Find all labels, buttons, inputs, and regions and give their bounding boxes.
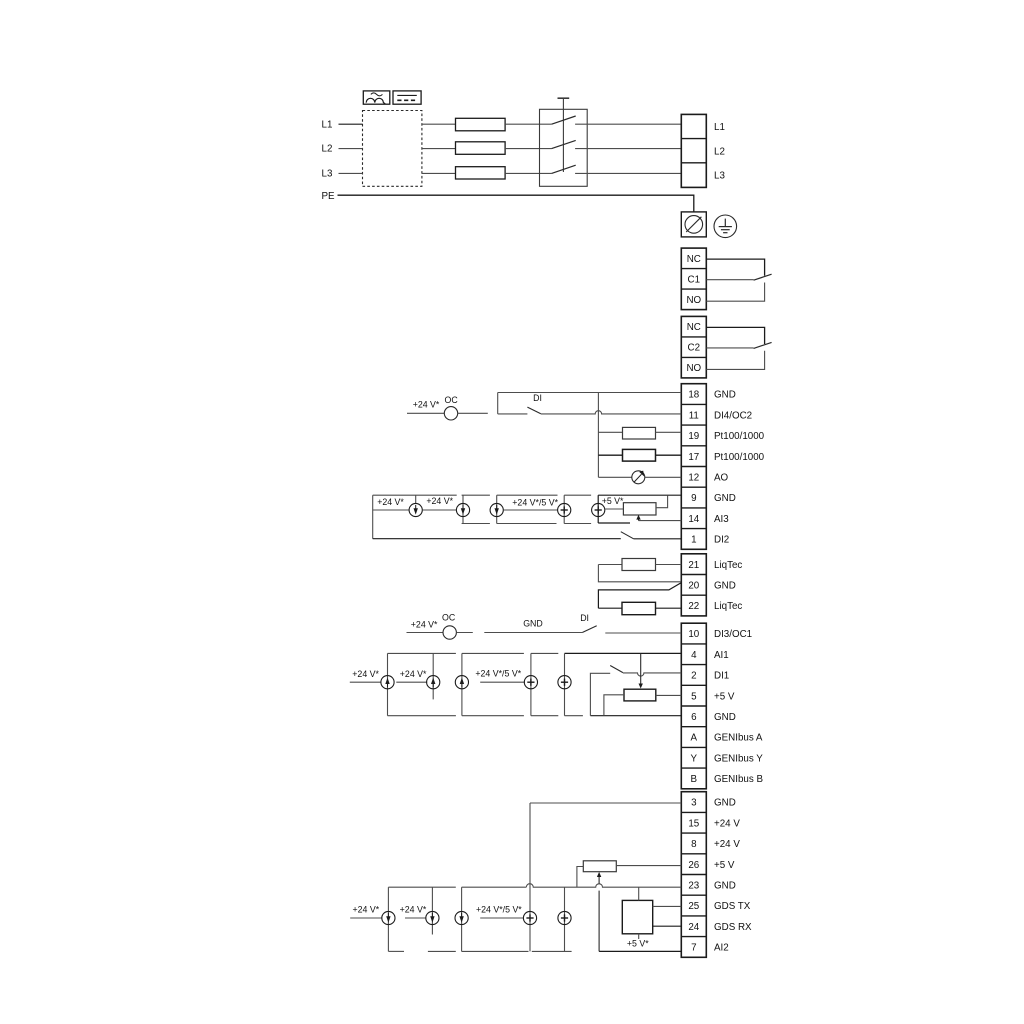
svg-text:22: 22	[688, 601, 699, 612]
svg-text:+24 V: +24 V	[714, 818, 740, 829]
svg-text:14: 14	[688, 514, 699, 525]
svg-text:AI3: AI3	[714, 514, 729, 525]
svg-text:DI1: DI1	[714, 671, 729, 682]
svg-text:OC: OC	[442, 612, 456, 622]
svg-text:OC: OC	[445, 395, 459, 405]
svg-text:GND: GND	[714, 880, 736, 891]
svg-text:LiqTec: LiqTec	[714, 601, 742, 612]
svg-text:6: 6	[691, 712, 697, 723]
svg-text:GND: GND	[523, 619, 543, 629]
svg-text:10: 10	[688, 629, 699, 640]
svg-text:DI3/OC1: DI3/OC1	[714, 629, 752, 640]
svg-text:+24 V: +24 V	[714, 839, 740, 850]
svg-text:+24 V*: +24 V*	[426, 496, 453, 506]
svg-text:23: 23	[688, 880, 699, 891]
svg-text:+24 V*: +24 V*	[413, 400, 440, 410]
svg-text:DI4/OC2: DI4/OC2	[714, 410, 752, 421]
svg-text:17: 17	[688, 452, 699, 463]
svg-text:B: B	[691, 774, 698, 785]
svg-text:C2: C2	[688, 343, 701, 354]
svg-text:C1: C1	[688, 275, 701, 286]
svg-text:DI: DI	[580, 613, 589, 623]
svg-text:L3: L3	[322, 169, 333, 180]
svg-text:+24 V*: +24 V*	[411, 619, 438, 629]
svg-text:GND: GND	[714, 580, 736, 591]
svg-text:PE: PE	[322, 191, 336, 202]
svg-text:+24 V*: +24 V*	[352, 669, 379, 679]
svg-text:DI2: DI2	[714, 535, 729, 546]
svg-text:11: 11	[689, 410, 699, 421]
svg-text:+5 V*: +5 V*	[602, 496, 624, 506]
svg-text:GND: GND	[714, 798, 736, 809]
svg-text:+24 V*: +24 V*	[400, 669, 427, 679]
svg-text:DI: DI	[533, 393, 542, 403]
svg-text:+24 V*/5 V*: +24 V*/5 V*	[476, 905, 522, 915]
svg-text:20: 20	[688, 580, 699, 591]
svg-text:9: 9	[691, 493, 696, 504]
svg-text:12: 12	[688, 472, 699, 483]
svg-text:GENIbus B: GENIbus B	[714, 774, 763, 785]
svg-text:GENIbus Y: GENIbus Y	[714, 753, 763, 764]
svg-text:Y: Y	[691, 753, 698, 764]
svg-text:+5 V: +5 V	[714, 691, 735, 702]
svg-text:GDS RX: GDS RX	[714, 922, 752, 933]
svg-text:GND: GND	[714, 493, 736, 504]
svg-text:1: 1	[691, 535, 696, 546]
svg-text:LiqTec: LiqTec	[714, 560, 742, 571]
svg-text:GENIbus A: GENIbus A	[714, 733, 763, 744]
svg-text:Pt100/1000: Pt100/1000	[714, 452, 765, 463]
svg-text:15: 15	[688, 818, 699, 829]
svg-text:AI1: AI1	[714, 650, 729, 661]
svg-text:GND: GND	[714, 712, 736, 723]
svg-text:NO: NO	[686, 363, 701, 374]
svg-text:GND: GND	[714, 390, 736, 401]
svg-text:L1: L1	[322, 119, 333, 130]
svg-text:NO: NO	[686, 295, 701, 306]
svg-text:26: 26	[688, 860, 699, 871]
svg-text:19: 19	[688, 431, 699, 442]
svg-text:NC: NC	[687, 254, 701, 265]
svg-text:+24 V*: +24 V*	[377, 497, 404, 507]
svg-text:AO: AO	[714, 472, 729, 483]
svg-text:+24 V*: +24 V*	[353, 905, 380, 915]
svg-text:18: 18	[688, 390, 699, 401]
svg-text:3: 3	[691, 798, 697, 809]
svg-text:+5 V: +5 V	[714, 860, 735, 871]
svg-text:NC: NC	[687, 322, 701, 333]
svg-text:L2: L2	[714, 146, 725, 157]
svg-text:+24 V*/5 V*: +24 V*/5 V*	[512, 498, 558, 508]
svg-text:4: 4	[691, 650, 697, 661]
svg-text:24: 24	[688, 922, 699, 933]
svg-text:5: 5	[691, 691, 697, 702]
svg-text:7: 7	[691, 943, 696, 954]
svg-text:2: 2	[691, 671, 696, 682]
svg-text:+24 V*/5 V*: +24 V*/5 V*	[475, 669, 521, 679]
svg-text:AI2: AI2	[714, 943, 729, 954]
svg-text:+24 V*: +24 V*	[400, 905, 427, 915]
svg-text:A: A	[691, 733, 698, 744]
svg-text:GDS TX: GDS TX	[714, 901, 751, 912]
svg-text:+5 V*: +5 V*	[627, 939, 649, 949]
svg-text:Pt100/1000: Pt100/1000	[714, 431, 765, 442]
svg-text:25: 25	[688, 901, 699, 912]
svg-text:L2: L2	[322, 144, 333, 155]
svg-text:8: 8	[691, 839, 697, 850]
svg-text:21: 21	[688, 560, 699, 571]
svg-text:L3: L3	[714, 171, 725, 182]
svg-text:L1: L1	[714, 122, 725, 133]
